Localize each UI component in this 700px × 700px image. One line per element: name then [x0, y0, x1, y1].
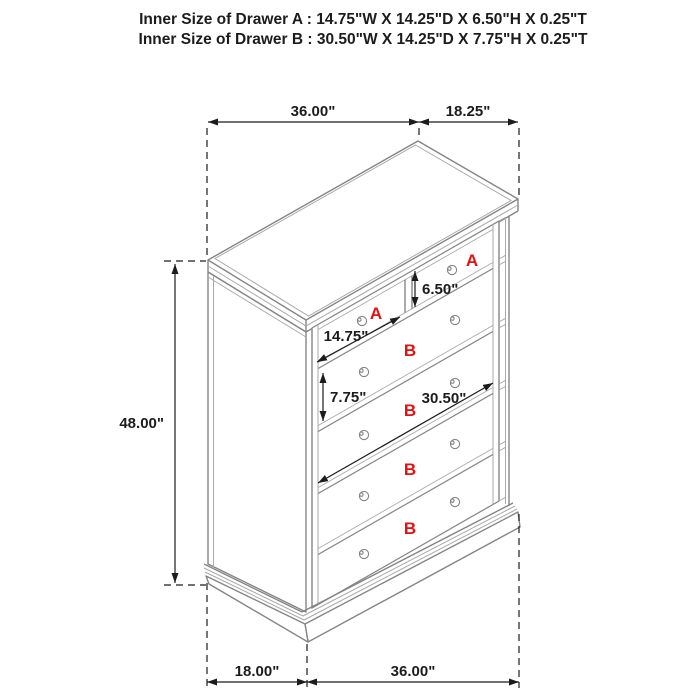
knob-drawer-b1-left — [359, 367, 368, 376]
knob-drawer-b3-left — [359, 491, 368, 500]
drawer-a-height-value: 6.50" — [422, 281, 458, 298]
knob-drawer-b2-right — [450, 378, 459, 387]
header-line-2: Inner Size of Drawer B : 30.50"W X 14.25… — [139, 31, 588, 48]
height-value: 48.00" — [119, 415, 164, 432]
drawer-b3-label: B — [404, 460, 416, 479]
drawer-a-left-label: A — [370, 304, 382, 323]
drawer-b1-label: B — [404, 341, 416, 360]
dimension-bottom-width: 36.00" — [307, 663, 519, 682]
knob-drawer-b1-right — [450, 315, 459, 324]
dimension-bottom-depth: 18.00" — [207, 663, 307, 682]
knob-drawer-b3-right — [450, 439, 459, 448]
knob-drawer-a-left — [357, 316, 366, 325]
dimension-top-depth: 18.25" — [419, 103, 518, 122]
bottom-depth-value: 18.00" — [235, 663, 280, 680]
bottom-width-value: 36.00" — [391, 663, 436, 680]
drawer-b-width-value: 30.50" — [422, 390, 467, 407]
top-width-value: 36.00" — [291, 103, 336, 120]
top-depth-value: 18.25" — [446, 103, 491, 120]
knob-drawer-b4-left — [359, 549, 368, 558]
knob-drawer-a-right — [447, 265, 456, 274]
header: Inner Size of Drawer A : 14.75"W X 14.25… — [139, 11, 588, 48]
drawer-b2-label: B — [404, 401, 416, 420]
knob-drawer-b2-left — [359, 430, 368, 439]
drawer-a-right-label: A — [466, 251, 478, 270]
diagram-canvas: Inner Size of Drawer A : 14.75"W X 14.25… — [0, 0, 700, 700]
dimension-top-width: 36.00" — [208, 103, 419, 122]
drawer-b4-label: B — [404, 519, 416, 538]
knob-drawer-b4-right — [450, 497, 459, 506]
drawer-b-height-value: 7.75" — [330, 389, 366, 406]
header-line-1: Inner Size of Drawer A : 14.75"W X 14.25… — [139, 11, 587, 28]
cabinet-left-panel — [208, 272, 306, 612]
dimension-height: 48.00" — [119, 264, 175, 583]
furniture-dimension-diagram: Inner Size of Drawer A : 14.75"W X 14.25… — [0, 0, 700, 700]
cabinet-right-edge — [499, 216, 509, 506]
drawer-a-width-value: 14.75" — [324, 328, 369, 345]
